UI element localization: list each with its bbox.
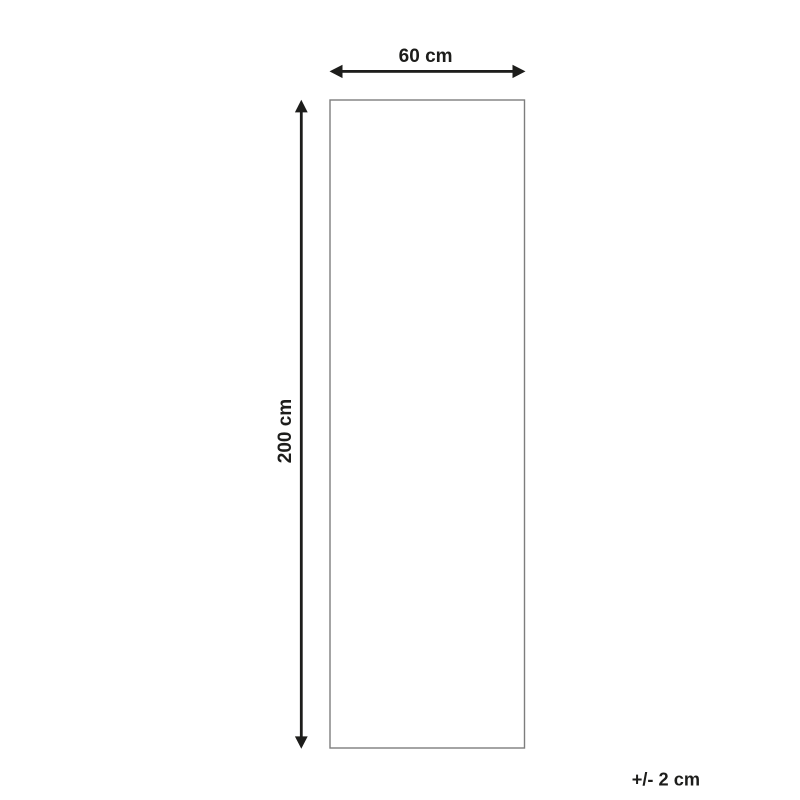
svg-text:60 cm: 60 cm <box>399 46 453 67</box>
svg-text:200 cm: 200 cm <box>275 399 296 463</box>
svg-text:+/- 2 cm: +/- 2 cm <box>632 770 700 790</box>
